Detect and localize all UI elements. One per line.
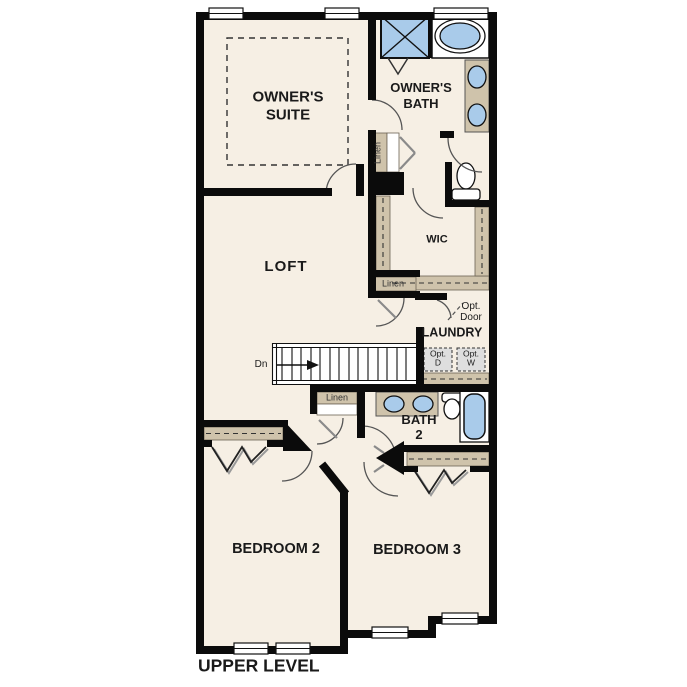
opt-washer-line2: W [463, 359, 479, 368]
window [372, 627, 408, 638]
window [434, 8, 488, 19]
opt-dryer-line2: D [430, 359, 446, 368]
opt-door-line2: Door [460, 312, 482, 323]
window [325, 8, 359, 19]
owners-vanity [465, 60, 489, 132]
room-label-bedroom2: BEDROOM 2 [232, 541, 320, 559]
room-label-laundry: LAUNDRY [422, 325, 483, 340]
room-label-wic: WIC [426, 233, 447, 246]
window [234, 643, 268, 654]
label-opt-washer: Opt. W [463, 350, 479, 369]
window [209, 8, 243, 19]
staircase [272, 343, 416, 385]
opt-door-line1: Opt. [460, 301, 482, 312]
room-label-bath2: BATH 2 [401, 413, 436, 443]
window [276, 643, 310, 654]
bath2-line2: 2 [401, 428, 436, 443]
owners-suite-line1: OWNER'S [252, 89, 323, 107]
closet-label-linen-hall: Linen [326, 393, 348, 404]
stairs-down-label: Dn [255, 359, 268, 371]
window [442, 613, 478, 624]
label-opt-door: Opt. Door [460, 301, 482, 323]
closet-label-linen-wic: Linen [382, 279, 404, 290]
floor-plan: OWNER'S SUITE OWNER'S BATH Linen LOFT WI… [0, 0, 687, 687]
owners-bath-line1: OWNER'S [390, 80, 452, 96]
owners-bath-line2: BATH [390, 96, 452, 112]
floor-plan-graphics [0, 0, 687, 687]
level-title: UPPER LEVEL [198, 655, 320, 676]
bath2-line1: BATH [401, 413, 436, 428]
room-label-loft: LOFT [264, 258, 307, 276]
label-opt-dryer: Opt. D [430, 350, 446, 369]
owners-suite-line2: SUITE [252, 107, 323, 125]
room-label-owners-bath: OWNER'S BATH [390, 80, 452, 112]
bath2-tub [460, 390, 489, 442]
closet-label-linen-owners: Linen [373, 142, 384, 164]
garden-tub [432, 14, 489, 58]
room-label-bedroom3: BEDROOM 3 [373, 542, 461, 560]
room-label-owners-suite: OWNER'S SUITE [252, 89, 323, 126]
